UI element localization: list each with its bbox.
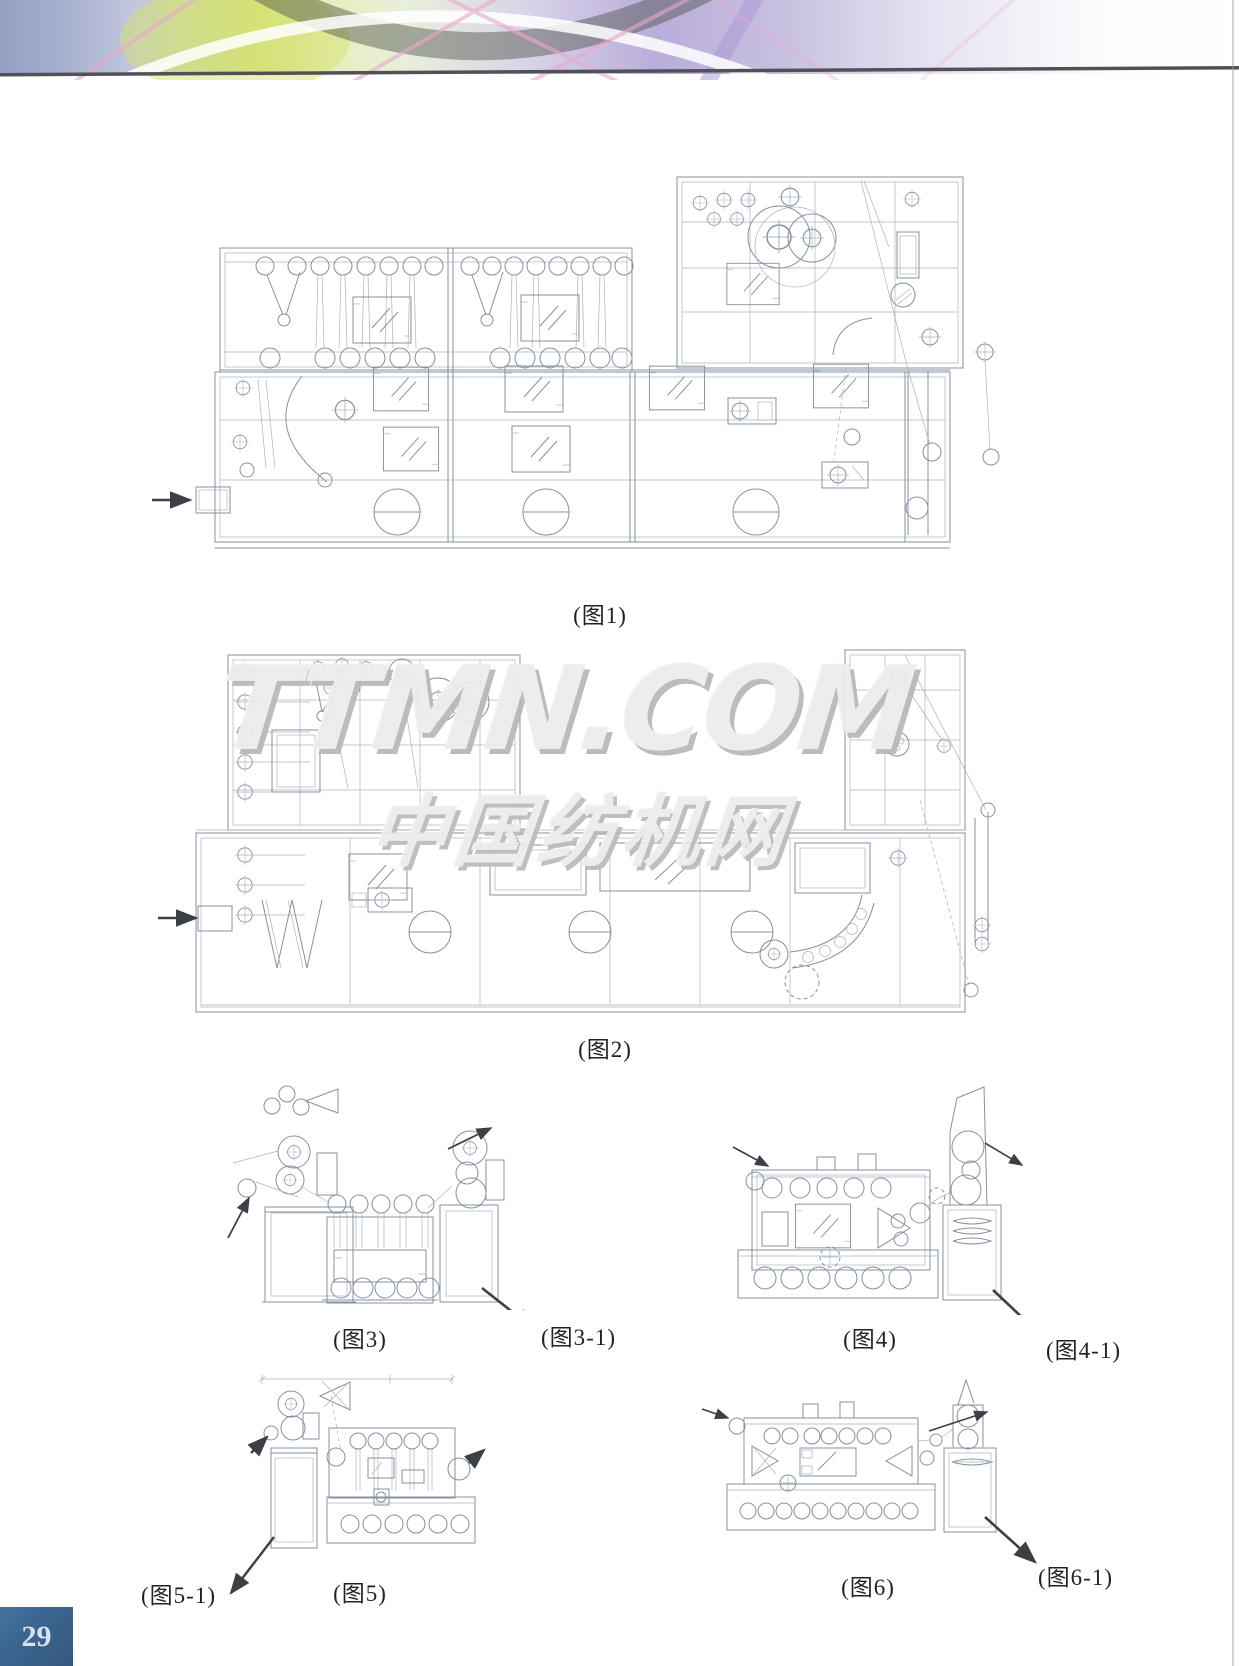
figure-5-1-caption: (图5-1) — [141, 1576, 216, 1610]
fig4-outfeed-arrow — [985, 1143, 1022, 1165]
fig2-upper-left-box — [228, 655, 520, 830]
fig5-outfeed-arrow — [469, 1450, 484, 1463]
figure-3-caption: (图3) — [300, 1320, 420, 1354]
fig6-outfeed-arrow — [929, 1412, 987, 1431]
fig5-infeed-arrow — [251, 1437, 267, 1453]
figure-6-1-caption: (图6-1) — [1038, 1558, 1113, 1592]
page-edge-line — [1232, 0, 1234, 1666]
figure-4-caption: (图4) — [810, 1320, 930, 1354]
figure-2-caption: (图2) — [525, 1030, 685, 1064]
figure-2-drawing — [150, 612, 1020, 1022]
fig5-1-pointer-arrow — [231, 1537, 274, 1593]
page-number: 29 — [22, 1620, 52, 1654]
figure-3-drawing — [200, 1080, 650, 1310]
figure-1-drawing — [150, 140, 1000, 615]
figure-3-1-caption: (图3-1) — [541, 1318, 616, 1352]
figure-5-drawing — [135, 1360, 555, 1610]
figure-4-drawing — [700, 1075, 1120, 1315]
headstock-box — [677, 177, 963, 368]
fig2-main-band — [196, 803, 995, 1012]
fig3-1-pointer-arrow — [482, 1288, 534, 1310]
figure-1-caption: (图1) — [520, 596, 680, 630]
bay1-rollers — [256, 257, 443, 368]
bay2-rollers — [461, 257, 633, 368]
fig3-infeed-arrow — [228, 1198, 249, 1238]
fig6-1-pointer-arrow — [985, 1517, 1035, 1562]
infeed-box — [196, 487, 230, 513]
figure-5-caption: (图5) — [300, 1574, 420, 1608]
figure-6-caption: (图6) — [808, 1568, 928, 1602]
header-banner — [0, 0, 1239, 80]
fig6-infeed-arrow — [702, 1409, 728, 1418]
fig2-infeed-box — [198, 906, 232, 931]
lower-band — [215, 326, 950, 548]
scanned-document-page: TTMN.COM 中国纺机网 (图1) (图2) (图3) (图3-1) (图4… — [0, 0, 1239, 1666]
fig4-infeed-arrow — [733, 1147, 768, 1166]
page-number-badge: 29 — [0, 1607, 73, 1666]
figure-4-1-caption: (图4-1) — [1046, 1331, 1121, 1365]
